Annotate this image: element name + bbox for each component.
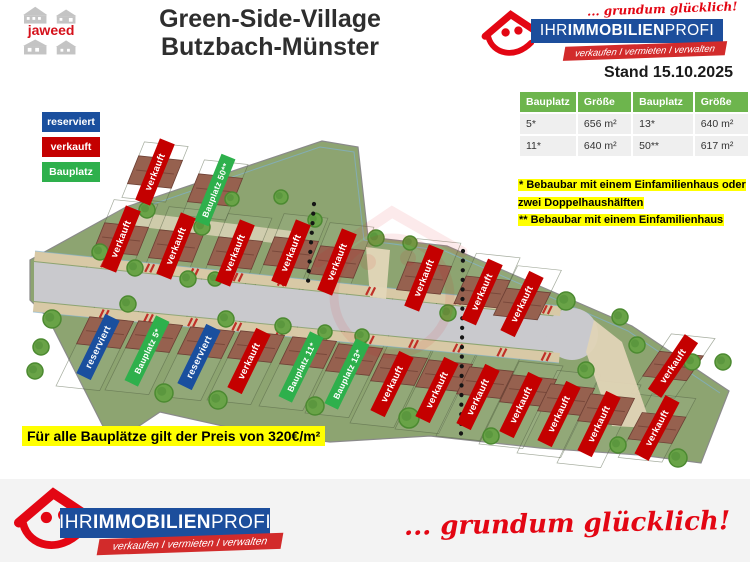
- table-cell: 11*: [520, 136, 576, 156]
- table-header-cell: Bauplatz: [520, 92, 576, 112]
- table-cell: 640 m²: [578, 136, 631, 156]
- footer-brand-bold: IMMOBILIEN: [93, 512, 211, 534]
- note-text-1: * Bebaubar mit einem Einfamilienhaus ode…: [518, 179, 746, 209]
- table-cell: 640 m²: [695, 114, 748, 134]
- plots-table-body: 5*656 m²13*640 m²11*640 m²50**617 m²: [520, 114, 748, 156]
- flyer-page: jaweed Green-Side-Village Butzbach-Münst…: [0, 0, 750, 562]
- plots-table: BauplatzGrößeBauplatzGröße 5*656 m²13*64…: [518, 90, 750, 158]
- footer: IHR IMMOBILIENPROFI verkaufen I vermiete…: [0, 479, 750, 562]
- note-line: * Bebaubar mit einem Einfamilienhaus ode…: [518, 177, 750, 212]
- price-note: Für alle Bauplätze gilt der Preis von 32…: [22, 426, 325, 446]
- footer-brand-suffix: PROFI: [211, 512, 271, 534]
- table-header-cell: Bauplatz: [633, 92, 693, 112]
- footer-brand-prefix: IHR: [59, 512, 93, 534]
- note-text-2: ** Bebaubar mit einem Einfamilienhaus: [518, 214, 724, 226]
- footer-slogan: ... grundum glücklich!: [404, 506, 731, 542]
- plots-table-head: BauplatzGrößeBauplatzGröße: [520, 92, 748, 112]
- note-line: ** Bebaubar mit einem Einfamilienhaus: [518, 212, 750, 230]
- table-header-cell: Größe: [578, 92, 631, 112]
- table-cell: 617 m²: [695, 136, 748, 156]
- table-cell: 656 m²: [578, 114, 631, 134]
- table-header-cell: Größe: [695, 92, 748, 112]
- table-cell: 13*: [633, 114, 693, 134]
- table-row: 5*656 m²13*640 m²: [520, 114, 748, 134]
- table-cell: 5*: [520, 114, 576, 134]
- table-cell: 50**: [633, 136, 693, 156]
- table-row: 11*640 m²50**617 m²: [520, 136, 748, 156]
- availability-notes: * Bebaubar mit einem Einfamilienhaus ode…: [518, 177, 750, 230]
- site-map: [0, 0, 750, 562]
